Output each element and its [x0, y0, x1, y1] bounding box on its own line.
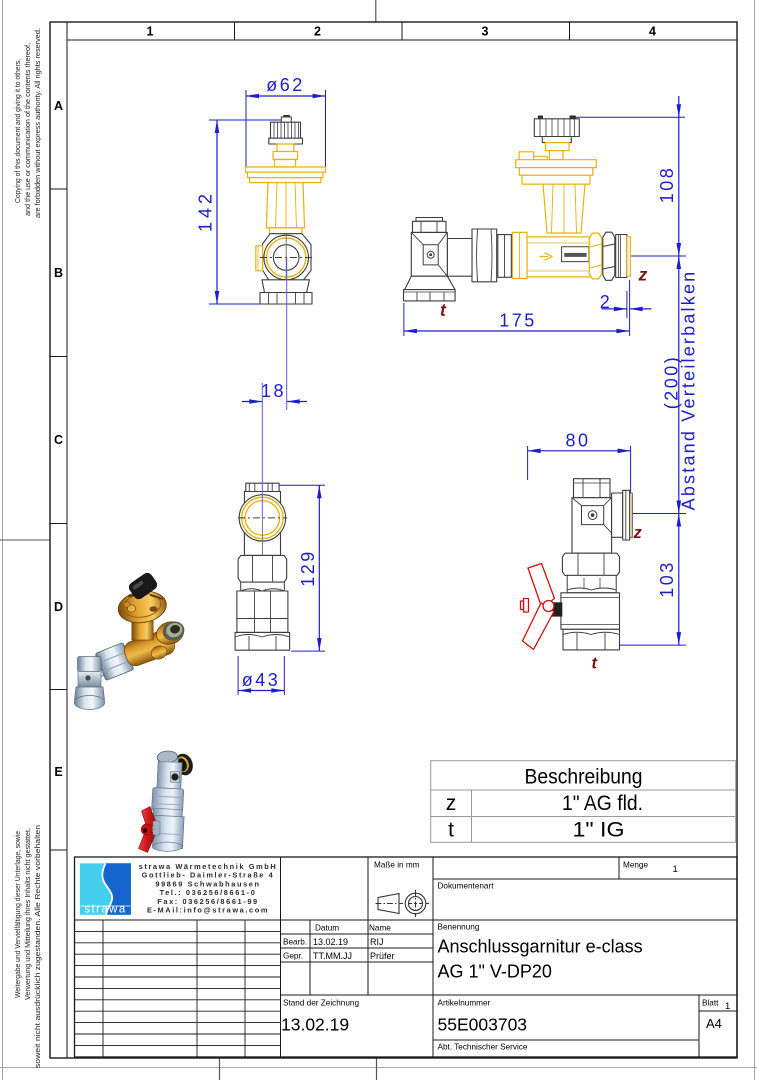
svg-text:AG 1" V-DP20: AG 1" V-DP20: [438, 962, 552, 982]
svg-text:Maße in mm: Maße in mm: [374, 861, 420, 870]
svg-text:Beschreibung: Beschreibung: [525, 766, 643, 789]
svg-text:soweit nicht ausdrücklich zuge: soweit nicht ausdrücklich zugestanden. A…: [35, 825, 42, 1068]
svg-text:80: 80: [565, 431, 590, 451]
svg-text:Abt. Technischer Service: Abt. Technischer Service: [438, 1043, 528, 1052]
svg-text:Artikelnummer: Artikelnummer: [438, 999, 491, 1008]
svg-text:Bearb.: Bearb.: [283, 938, 307, 947]
svg-text:A: A: [54, 99, 63, 113]
svg-text:C: C: [54, 433, 63, 447]
svg-text:1: 1: [673, 864, 678, 875]
svg-text:129: 129: [298, 549, 318, 587]
svg-text:Prüfer: Prüfer: [370, 951, 395, 961]
svg-text:13.02.19: 13.02.19: [313, 937, 348, 947]
svg-text:ø43: ø43: [242, 670, 281, 690]
svg-text:175: 175: [499, 311, 537, 331]
svg-text:Stand der Zeichnung: Stand der Zeichnung: [283, 999, 359, 1008]
svg-text:18: 18: [261, 381, 286, 401]
svg-text:ø62: ø62: [266, 75, 305, 95]
svg-text:4: 4: [649, 25, 656, 39]
svg-text:108: 108: [657, 166, 677, 204]
svg-text:D: D: [54, 600, 63, 614]
svg-text:t: t: [592, 655, 599, 673]
svg-text:Dokumentenart: Dokumentenart: [438, 882, 495, 891]
svg-text:Abstand Verteilerbalken: Abstand Verteilerbalken: [679, 270, 699, 511]
svg-text:Datum: Datum: [315, 924, 339, 933]
svg-text:1: 1: [725, 1001, 730, 1012]
svg-text:Verwertung und Mitteilung ihre: Verwertung und Mitteilung ihres Inhalts …: [25, 828, 32, 1000]
svg-text:t: t: [448, 819, 454, 842]
svg-text:Weitergabe und Vervielfältigun: Weitergabe und Vervielfältigung dieser U…: [15, 831, 22, 998]
svg-text:z: z: [633, 524, 643, 542]
svg-text:z: z: [638, 265, 648, 285]
svg-text:103: 103: [657, 560, 677, 598]
svg-text:55E003703: 55E003703: [438, 1015, 528, 1035]
svg-text:strawa Wärmetechnik GmbH: strawa Wärmetechnik GmbH: [139, 862, 278, 871]
svg-text:Name: Name: [369, 924, 391, 933]
svg-text:strawa: strawa: [84, 904, 126, 916]
svg-text:Blatt: Blatt: [702, 999, 719, 1008]
svg-text:2: 2: [314, 25, 321, 39]
svg-text:99869 Schwabhausen: 99869 Schwabhausen: [155, 879, 260, 888]
svg-text:13.02.19: 13.02.19: [281, 1015, 349, 1035]
svg-text:z: z: [446, 792, 457, 815]
svg-text:E-MAil:info@strawa.com: E-MAil:info@strawa.com: [147, 906, 269, 915]
svg-text:1: 1: [147, 25, 154, 39]
svg-text:1" IG: 1" IG: [573, 819, 625, 842]
svg-text:142: 142: [196, 190, 216, 232]
svg-text:RIJ: RIJ: [370, 937, 384, 947]
svg-text:Copying of this document and g: Copying of this document and giving it t…: [15, 59, 22, 203]
svg-text:t: t: [440, 300, 447, 320]
svg-text:Menge: Menge: [623, 861, 648, 870]
svg-text:are forbidden without express: are forbidden without express authority.…: [35, 28, 42, 218]
svg-text:TT.MM.JJ: TT.MM.JJ: [313, 951, 352, 961]
svg-text:Gepr.: Gepr.: [283, 952, 303, 961]
svg-text:E: E: [54, 765, 62, 779]
svg-text:Gottlieb- Daimler-Straße 4: Gottlieb- Daimler-Straße 4: [142, 871, 275, 880]
svg-text:Benennung: Benennung: [438, 923, 480, 932]
svg-text:Tel.: 036256/8661-0: Tel.: 036256/8661-0: [160, 888, 257, 897]
svg-text:A4: A4: [706, 1016, 722, 1031]
svg-text:B: B: [54, 266, 63, 280]
svg-text:3: 3: [482, 25, 489, 39]
svg-text:Fax: 036256/8661-99: Fax: 036256/8661-99: [157, 897, 259, 906]
svg-text:Anschlussgarnitur e-class: Anschlussgarnitur e-class: [438, 937, 643, 957]
svg-text:and the use or communication o: and the use or communication of the cont…: [25, 43, 32, 216]
svg-text:1" AG fld.: 1" AG fld.: [562, 792, 643, 815]
